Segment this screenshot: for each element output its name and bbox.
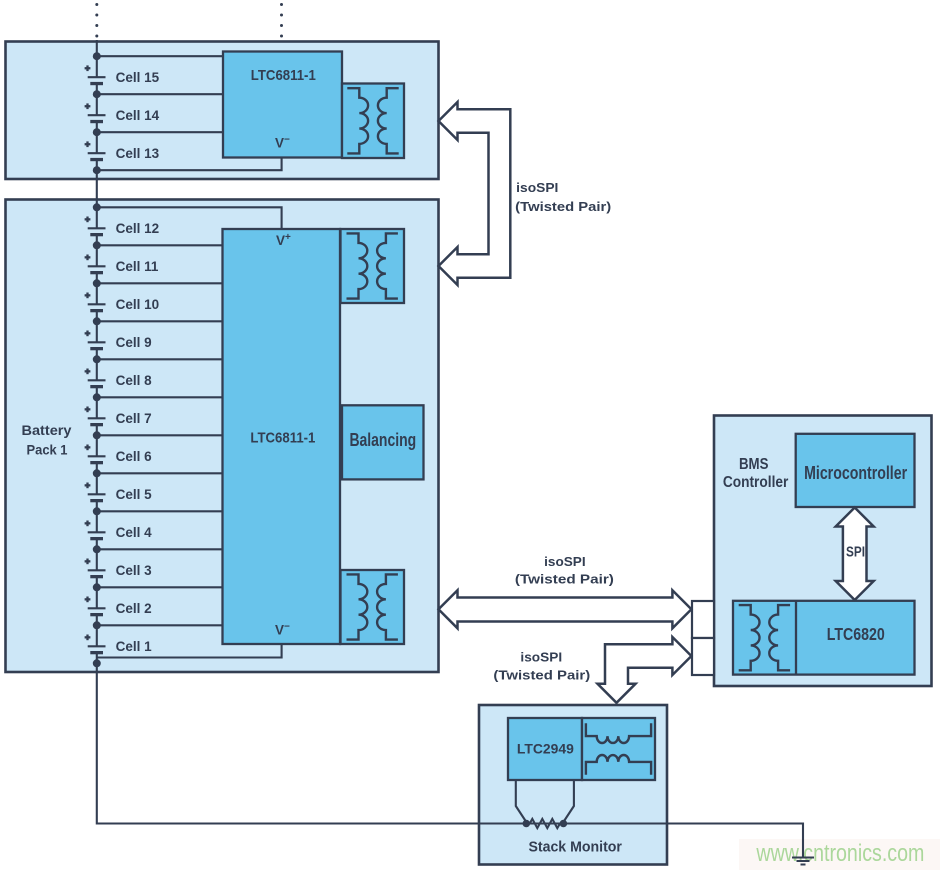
- svg-text:Cell 7: Cell 7: [116, 411, 152, 426]
- svg-text:Cell 12: Cell 12: [116, 221, 160, 236]
- svg-text:LTC2949: LTC2949: [517, 741, 574, 757]
- svg-text:isoSPI: isoSPI: [520, 649, 562, 664]
- svg-text:Cell 13: Cell 13: [116, 146, 160, 161]
- svg-text:LTC6820: LTC6820: [827, 624, 885, 644]
- svg-text:LTC6811-1: LTC6811-1: [250, 429, 315, 446]
- svg-text:Balancing: Balancing: [349, 430, 416, 450]
- svg-text:(Twisted Pair): (Twisted Pair): [515, 572, 614, 587]
- svg-text:Cell 9: Cell 9: [116, 335, 152, 350]
- svg-text:Cell 6: Cell 6: [116, 449, 153, 464]
- svg-text:Cell 5: Cell 5: [116, 487, 153, 502]
- svg-text:Microcontroller: Microcontroller: [804, 463, 907, 483]
- svg-text:isoSPI: isoSPI: [516, 180, 558, 195]
- svg-text:isoSPI: isoSPI: [544, 554, 586, 569]
- svg-text:Controller: Controller: [723, 474, 789, 491]
- svg-text:Cell 8: Cell 8: [116, 373, 153, 388]
- svg-text:Cell 3: Cell 3: [116, 563, 153, 578]
- svg-text:Cell 15: Cell 15: [116, 70, 160, 85]
- svg-text:LTC6811-1: LTC6811-1: [251, 67, 316, 84]
- svg-text:Pack 1: Pack 1: [27, 442, 68, 458]
- svg-text:www.cntronics.com: www.cntronics.com: [756, 840, 925, 867]
- svg-text:Battery: Battery: [22, 422, 72, 438]
- svg-text:Cell 11: Cell 11: [116, 259, 159, 274]
- svg-text:Cell 4: Cell 4: [116, 525, 153, 540]
- svg-text:Cell 2: Cell 2: [116, 601, 152, 616]
- svg-text:(Twisted Pair): (Twisted Pair): [493, 668, 590, 683]
- svg-text:Cell 10: Cell 10: [116, 297, 160, 312]
- svg-text:Cell 1: Cell 1: [116, 639, 153, 654]
- svg-text:BMS: BMS: [739, 456, 769, 473]
- svg-text:SPI: SPI: [846, 545, 865, 561]
- svg-text:Cell 14: Cell 14: [116, 108, 160, 123]
- svg-text:(Twisted Pair): (Twisted Pair): [515, 199, 611, 214]
- svg-text:Stack Monitor: Stack Monitor: [528, 840, 622, 856]
